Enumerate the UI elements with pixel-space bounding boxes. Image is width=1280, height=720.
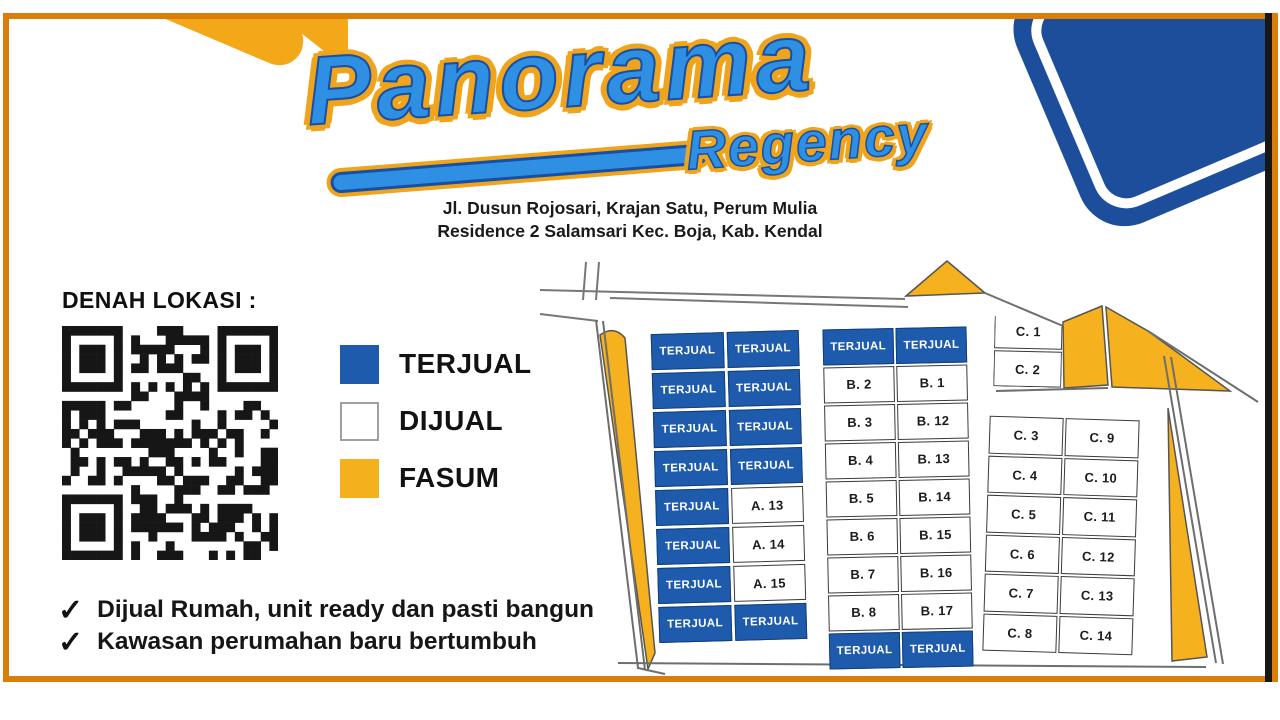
legend-label-terjual: TERJUAL [399,348,532,380]
lot-cell-B-7-1: B. 17 [901,592,972,629]
legend-label-dijual: DIJUAL [399,405,503,437]
lot-cell-C-2-0: C. 5 [986,495,1061,535]
lot-cell-A-5-1: A. 14 [732,525,805,563]
lot-cell-A-2-1: TERJUAL [728,408,801,446]
checklist-item: ✓ Kawasan perumahan baru bertumbuh [58,628,626,658]
lot-cell-A-2-0: TERJUAL [653,410,726,448]
fasum-band-1 [1063,306,1108,388]
address: Jl. Dusun Rojosari, Krajan Satu, Perum M… [320,197,940,243]
lot-cell-C-3-1: C. 12 [1061,537,1136,577]
legend: TERJUAL DIJUAL FASUM [340,344,532,498]
legend-item-dijual: DIJUAL [340,401,532,441]
legend-item-terjual: TERJUAL [340,344,532,384]
lot-cell-C-5-1: C. 14 [1058,615,1133,655]
legend-swatch-fasum [340,459,379,498]
lot-cell-B-2-1: B. 12 [897,403,968,440]
lot-cell-C-1-0: C. 4 [987,455,1062,495]
legend-swatch-dijual [340,402,379,441]
lot-cell-A-6-1: A. 15 [733,564,806,602]
lot-cell-B-4-0: B. 5 [826,480,897,517]
lot-cell-B-5-1: B. 15 [900,516,971,553]
legend-swatch-terjual [340,345,379,384]
lot-cell-A-5-0: TERJUAL [656,527,729,565]
lot-cell-A-7-1: TERJUAL [734,603,807,641]
checklist-text: Dijual Rumah, unit ready dan pasti bangu… [97,596,626,626]
lot-cell-B-0-1: TERJUAL [896,327,967,364]
lot-cell-B-2-0: B. 3 [824,404,895,441]
flyer-canvas: Panorama Regency Jl. Dusun Rojosari, Kra… [0,0,1280,720]
check-icon: ✓ [58,596,83,626]
lot-cell-B-8-0: TERJUAL [829,632,900,669]
lot-cell-B-4-1: B. 14 [899,478,970,515]
qr-code [62,326,278,560]
lot-cell-A-3-1: TERJUAL [729,447,802,485]
lot-cell-A-3-0: TERJUAL [654,449,727,487]
lot-cell-B-3-1: B. 13 [898,441,969,478]
lot-cell-A-7-0: TERJUAL [658,605,731,643]
lot-block-b: TERJUALTERJUALB. 2B. 1B. 3B. 12B. 4B. 13… [822,327,973,669]
logo-swoosh [330,143,708,194]
lot-cell-C-1-1: C. 10 [1063,458,1138,498]
section-title: DENAH LOKASI : [62,287,257,314]
lot-cell-A-1-1: TERJUAL [727,369,800,407]
canvas-margin-top [0,0,1280,13]
lot-cell-B-1-1: B. 1 [896,365,967,402]
feature-checklist: ✓ Dijual Rumah, unit ready dan pasti ban… [58,596,626,660]
lot-cell-B-7-0: B. 8 [828,594,899,631]
legend-item-fasum: FASUM [340,458,532,498]
lot-cell-Ctop-1-0: C. 2 [993,350,1062,387]
lot-cell-B-6-0: B. 7 [827,556,898,593]
lot-cell-C-3-0: C. 6 [985,534,1060,574]
address-line-1: Jl. Dusun Rojosari, Krajan Satu, Perum M… [320,197,940,220]
legend-label-fasum: FASUM [399,462,500,494]
lot-cell-B-5-0: B. 6 [826,518,897,555]
lot-cell-A-6-0: TERJUAL [657,566,730,604]
lot-cell-A-0-0: TERJUAL [651,332,724,370]
lot-cell-C-2-1: C. 11 [1062,497,1137,537]
lot-cell-C-0-1: C. 9 [1065,418,1140,458]
lot-cell-C-4-1: C. 13 [1060,576,1135,616]
check-icon: ✓ [58,628,83,658]
road-lines [540,262,908,321]
lot-cell-B-3-0: B. 4 [825,442,896,479]
lot-block-a: TERJUALTERJUALTERJUALTERJUALTERJUALTERJU… [651,330,808,643]
lot-cell-C-5-0: C. 8 [982,613,1057,653]
lot-cell-B-1-0: B. 2 [823,366,894,403]
canvas-margin-bottom [0,682,1280,720]
lot-cell-B-8-1: TERJUAL [902,630,973,667]
right-edge-black-strip [1265,13,1272,682]
checklist-text: Kawasan perumahan baru bertumbuh [97,628,626,658]
lot-cell-A-4-1: A. 13 [731,486,804,524]
lot-cell-A-0-1: TERJUAL [726,330,799,368]
qr-code-image [62,326,278,560]
lot-cell-A-1-0: TERJUAL [652,371,725,409]
fasum-triangle [906,261,985,296]
lot-cell-C-4-0: C. 7 [984,574,1059,614]
lot-cell-B-0-0: TERJUAL [822,328,893,365]
lot-cell-A-4-0: TERJUAL [655,488,728,526]
blue-card-decoration [999,0,1280,241]
lot-cell-B-6-1: B. 16 [900,554,971,591]
canvas-margin-left [0,0,3,720]
address-line-2: Residence 2 Salamsari Kec. Boja, Kab. Ke… [320,220,940,243]
lot-block-c: C. 3C. 9C. 4C. 10C. 5C. 11C. 6C. 12C. 7C… [982,416,1139,656]
checklist-item: ✓ Dijual Rumah, unit ready dan pasti ban… [58,596,626,626]
lot-cell-C-0-0: C. 3 [989,416,1064,456]
